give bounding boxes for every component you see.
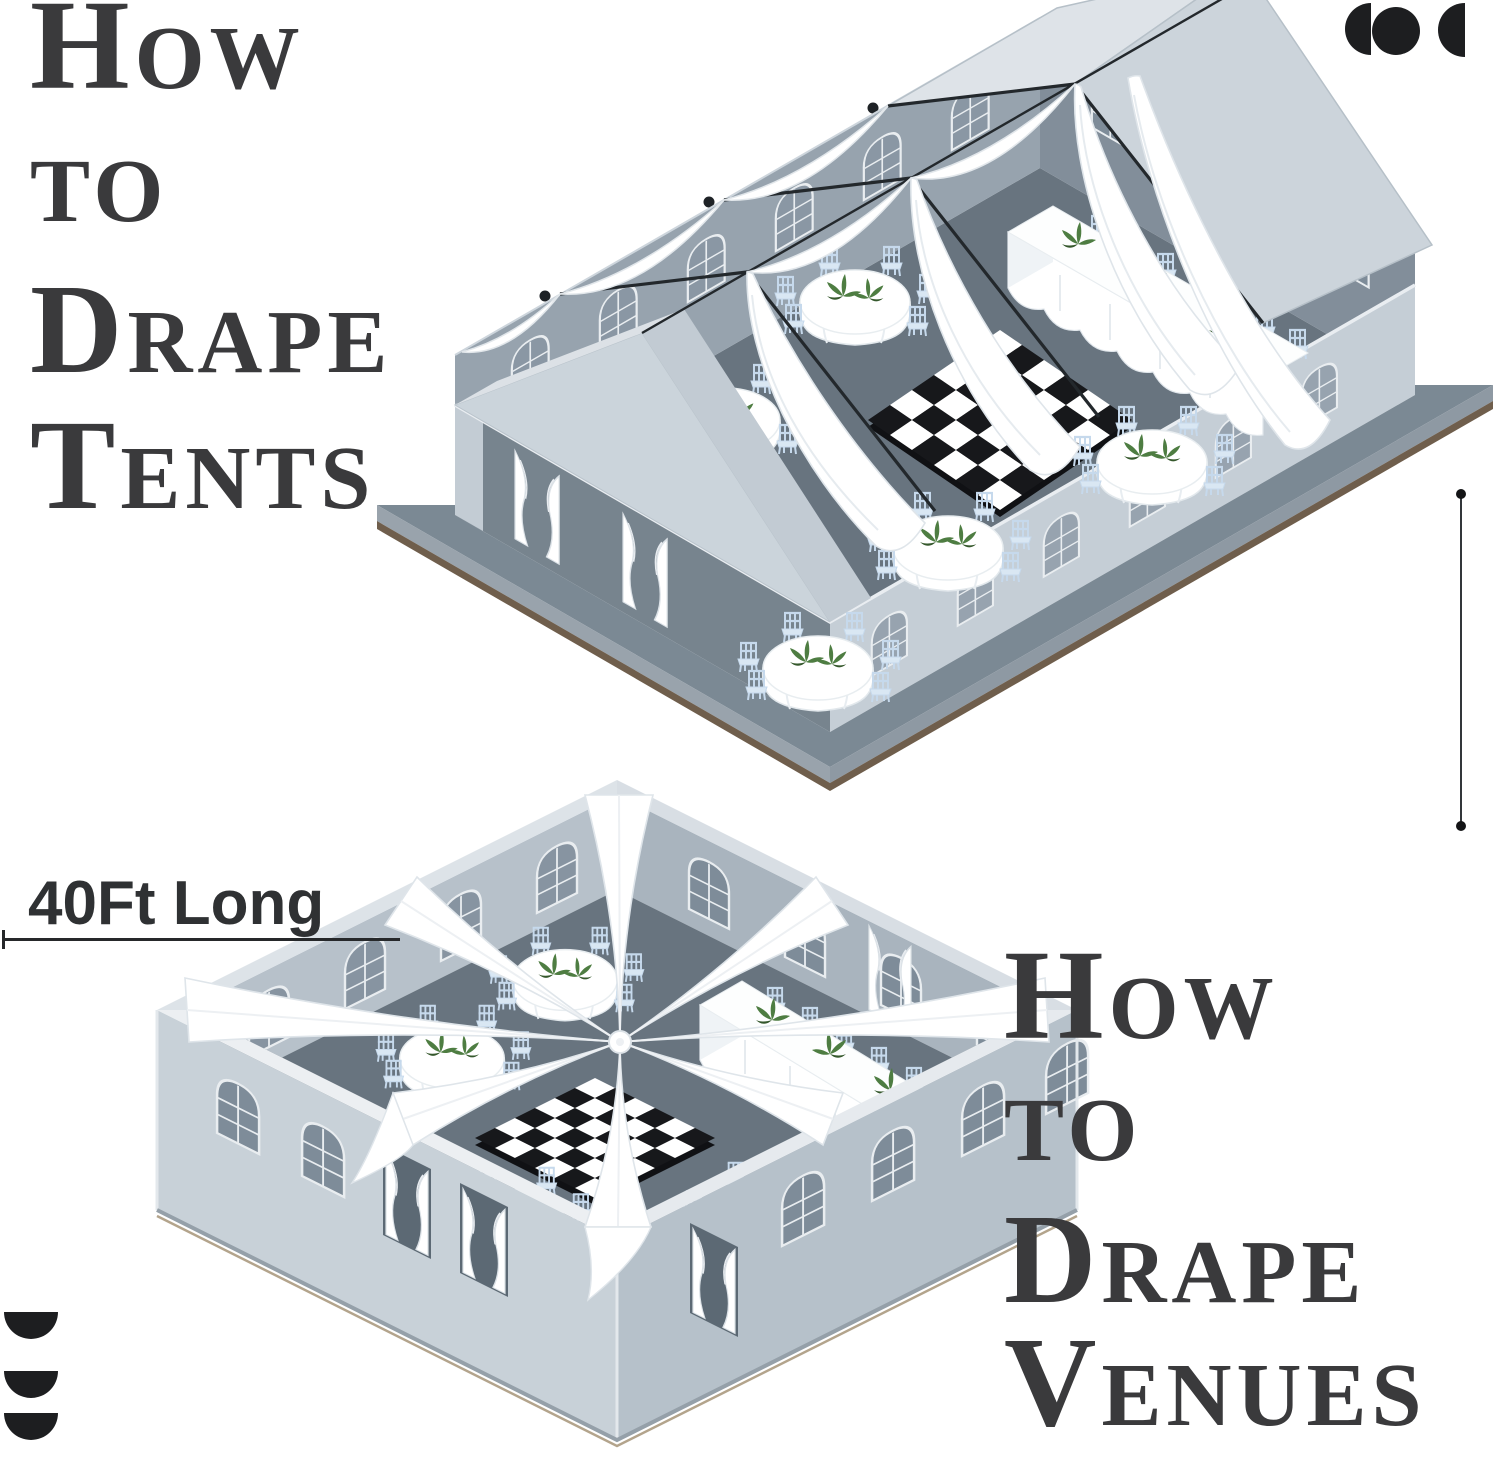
title-venues-line-2: to [1004, 1053, 1142, 1181]
length-dimension-tick [2, 930, 5, 949]
title-tents-line-2: to [30, 114, 168, 242]
title-tents-line-3: Drape [30, 265, 392, 393]
venue-drape-center-knob-inner [616, 1038, 624, 1046]
title-venues-line-1: How [1004, 931, 1279, 1059]
title-tents-line-4: Tents [30, 401, 375, 529]
length-dimension-label: 40Ft Long [28, 868, 324, 939]
infographic-canvas: How to Drape Tents How to Drape Venues 4… [0, 0, 1500, 1469]
title-venues-line-4: Venues [1004, 1318, 1427, 1446]
height-dimension-rule [1460, 494, 1462, 826]
tent-wall-corner-strip [455, 405, 483, 531]
crescent-dots-logo-icon [1340, 0, 1490, 70]
tent-illustration [377, 0, 1493, 791]
title-venues-line-3: Drape [1004, 1195, 1366, 1323]
stacked-half-moons-logo-icon [0, 1280, 70, 1469]
title-tents-line-1: How [30, 0, 305, 109]
length-dimension-line [2, 938, 400, 941]
